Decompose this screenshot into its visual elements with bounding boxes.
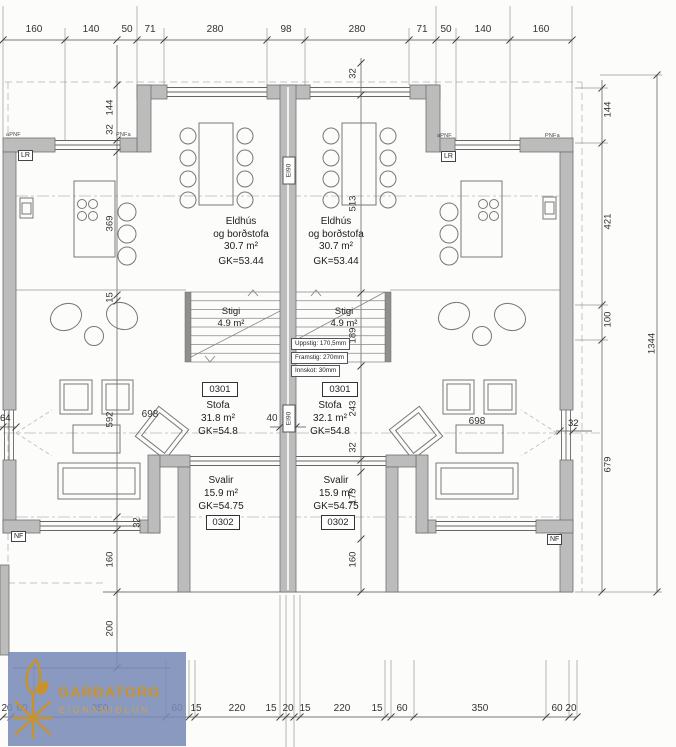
room-label-living-right: Stofa 32.1 m² GK=54.8 <box>290 399 370 438</box>
room-area: 15.9 m² <box>296 487 376 500</box>
room-name: og borðstofa <box>281 229 391 242</box>
bar-stool-left <box>118 225 136 243</box>
sofa-left-inner <box>63 468 135 494</box>
room-area: 4.9 m² <box>314 318 374 330</box>
wall-tag-pnf: PNFa <box>545 133 560 139</box>
dining-chair-left <box>237 192 253 208</box>
round-table-left <box>85 327 104 346</box>
armchair-right-1 <box>443 380 474 414</box>
wall-tag-pnf: PNFa <box>116 132 131 138</box>
lounge-chair-left-1 <box>46 298 86 335</box>
dim-center-chain: 160 <box>348 538 359 582</box>
cooktop-burner-left <box>89 200 98 209</box>
wall-tag-lr-left: LR <box>18 150 33 161</box>
wall-tag-pnf: aPNF <box>6 132 21 138</box>
fire-rating-tag: EI90 <box>283 405 296 433</box>
dim-left-wall: 64 <box>0 413 11 424</box>
armchair-left-1-inner <box>64 384 88 410</box>
armchair-left-1 <box>60 380 92 414</box>
room-label-stair-right: Stigi 4.9 m² <box>314 306 374 330</box>
gardatorg-logo-icon <box>12 656 58 744</box>
cooktop-burner-left <box>78 212 87 221</box>
room-number-living-left: 0301 <box>202 382 238 397</box>
cooktop-burner-right <box>490 212 499 221</box>
room-name: og borðstofa <box>186 229 296 242</box>
bar-stool-left <box>118 247 136 265</box>
dim-center-chain: 32 <box>348 52 359 96</box>
gardatorg-logo: GARÐATORG EIGNAMIÐLUN <box>8 652 186 746</box>
cooktop-burner-right <box>479 212 488 221</box>
dining-chair-left <box>180 150 196 166</box>
room-area: 30.7 m² <box>281 241 391 254</box>
room-number-balcony-right: 0302 <box>321 515 355 530</box>
sink-right-basin <box>545 202 554 214</box>
wall <box>520 138 573 152</box>
room-name: Stigi <box>314 306 374 318</box>
dim-top: 280 <box>195 24 235 35</box>
room-area: 31.8 m² <box>178 412 258 425</box>
dining-chair-right <box>323 192 339 208</box>
logo-tagline-text: EIGNAMIÐLUN <box>59 705 150 715</box>
cooktop-burner-right <box>479 200 488 209</box>
dim-right-chain: 100 <box>603 298 614 342</box>
dim-bottom: 350 <box>460 703 500 714</box>
fire-rating-tag: EI90 <box>283 157 296 185</box>
wall-tag-pnf: aPNF <box>437 133 452 139</box>
logo-brand-text: GARÐATORG <box>58 685 161 701</box>
dim-top: 140 <box>71 24 111 35</box>
dim-bottom: 60 <box>382 703 422 714</box>
room-area: 15.9 m² <box>181 487 261 500</box>
kitchen-island-right <box>461 181 502 257</box>
dining-chair-left <box>180 128 196 144</box>
room-area: 4.9 m² <box>201 318 261 330</box>
dim-top: 140 <box>463 24 503 35</box>
dim-top: 160 <box>521 24 561 35</box>
wall-tag-lr-right: LR <box>441 151 456 162</box>
dim-top: 71 <box>130 24 170 35</box>
room-label-kitchen-right: Eldhús og borðstofa 30.7 m² GK=53.44 <box>281 216 391 268</box>
armchair-right-2 <box>484 380 516 414</box>
room-level: GK=54.8 <box>178 425 258 438</box>
dim-right-chain: 421 <box>603 200 614 244</box>
lounge-chair-right-2 <box>490 298 530 335</box>
lounge-chair-right-1 <box>434 297 474 334</box>
room-level: GK=53.44 <box>281 256 391 269</box>
armchair-right-1-inner <box>447 384 470 410</box>
dining-chair-right <box>380 150 396 166</box>
sofa-right-inner <box>441 468 513 494</box>
room-name: Stofa <box>178 399 258 412</box>
dim-top: 50 <box>426 24 466 35</box>
wall <box>440 138 455 152</box>
wall <box>386 467 398 592</box>
dim-overall-height: 1344 <box>647 322 658 366</box>
room-name: Svalir <box>181 474 261 487</box>
wall <box>536 520 573 533</box>
dim-right-wall: 32 <box>568 418 579 429</box>
armchair-right-2-inner <box>488 384 512 410</box>
wall-tag-nf-left: NF <box>11 531 26 542</box>
dim-left-chain: 32 <box>105 108 116 152</box>
dim-left-chain: 32 <box>132 501 143 545</box>
room-name: Eldhús <box>281 216 391 229</box>
room-area: 32.1 m² <box>290 412 370 425</box>
dining-chair-left <box>180 171 196 187</box>
bar-stool-left <box>118 203 136 221</box>
room-label-balcony-right: Svalir 15.9 m² GK=54.75 <box>296 474 376 513</box>
cooktop-burner-left <box>78 200 87 209</box>
dim-right-chain: 679 <box>603 443 614 487</box>
wall <box>0 565 9 655</box>
wall <box>426 85 440 152</box>
room-level: GK=53.44 <box>186 256 296 269</box>
dining-chair-left <box>237 171 253 187</box>
dim-top: 280 <box>337 24 377 35</box>
floor-plan-page: 160 140 50 71 280 98 280 71 50 140 160 2… <box>0 0 676 747</box>
dim-left-chain: 200 <box>105 607 116 651</box>
dining-chair-right <box>323 150 339 166</box>
dining-chair-right <box>380 128 396 144</box>
dim-bottom: 15 <box>285 703 325 714</box>
wall <box>137 85 151 152</box>
room-name: Eldhús <box>186 216 296 229</box>
wall-tag-nf-right: NF <box>547 534 562 545</box>
dim-left-chain: 160 <box>105 538 116 582</box>
dining-chair-left <box>237 150 253 166</box>
dim-left-chain: 369 <box>105 202 116 246</box>
room-label-balcony-left: Svalir 15.9 m² GK=54.75 <box>181 474 261 513</box>
room-label-living-left: Stofa 31.8 m² GK=54.8 <box>178 399 258 438</box>
room-name: Stofa <box>290 399 370 412</box>
round-table-right <box>473 327 492 346</box>
dim-left-chain: 592 <box>105 398 116 442</box>
wall <box>560 152 573 410</box>
dining-chair-right <box>323 128 339 144</box>
dim-bottom: 220 <box>322 703 362 714</box>
room-level: GK=54.75 <box>296 500 376 513</box>
room-level: GK=54.8 <box>290 425 370 438</box>
bar-stool-right <box>440 225 458 243</box>
room-number-living-right: 0301 <box>322 382 358 397</box>
room-level: GK=54.75 <box>181 500 261 513</box>
wall <box>416 455 428 533</box>
dining-table-left <box>199 123 233 205</box>
stair-spec-nosing: Innskot: 30mm <box>291 365 340 377</box>
room-area: 30.7 m² <box>186 241 296 254</box>
dim-left-chain: 15 <box>105 276 116 320</box>
cooktop-burner-right <box>490 200 499 209</box>
wall <box>120 138 137 152</box>
coffee-table-right <box>456 425 503 453</box>
dining-chair-right <box>323 171 339 187</box>
wall <box>3 152 16 410</box>
dim-top: 98 <box>266 24 306 35</box>
dining-chair-left <box>180 192 196 208</box>
sink-left-basin <box>22 203 31 214</box>
room-label-kitchen-left: Eldhús og borðstofa 30.7 m² GK=53.44 <box>186 216 296 268</box>
cooktop-burner-left <box>89 212 98 221</box>
dim-top: 160 <box>14 24 54 35</box>
wall <box>148 455 160 533</box>
bar-stool-right <box>440 203 458 221</box>
dining-chair-right <box>380 192 396 208</box>
bar-stool-right <box>440 247 458 265</box>
dim-right-chain: 144 <box>603 88 614 132</box>
wall <box>160 455 190 467</box>
dim-bottom: 20 <box>551 703 591 714</box>
room-number-balcony-left: 0302 <box>206 515 240 530</box>
dining-chair-left <box>237 128 253 144</box>
stair-spec-rise: Uppstig: 170,5mm <box>291 338 350 350</box>
dining-chair-right <box>380 171 396 187</box>
stair-spec-going: Framstig: 270mm <box>291 352 348 364</box>
wall <box>386 455 416 467</box>
room-label-stair-left: Stigi 4.9 m² <box>201 306 261 330</box>
dim-sofa-left: 698 <box>130 409 170 420</box>
room-name: Stigi <box>201 306 261 318</box>
dim-sofa-right: 698 <box>457 416 497 427</box>
room-name: Svalir <box>296 474 376 487</box>
